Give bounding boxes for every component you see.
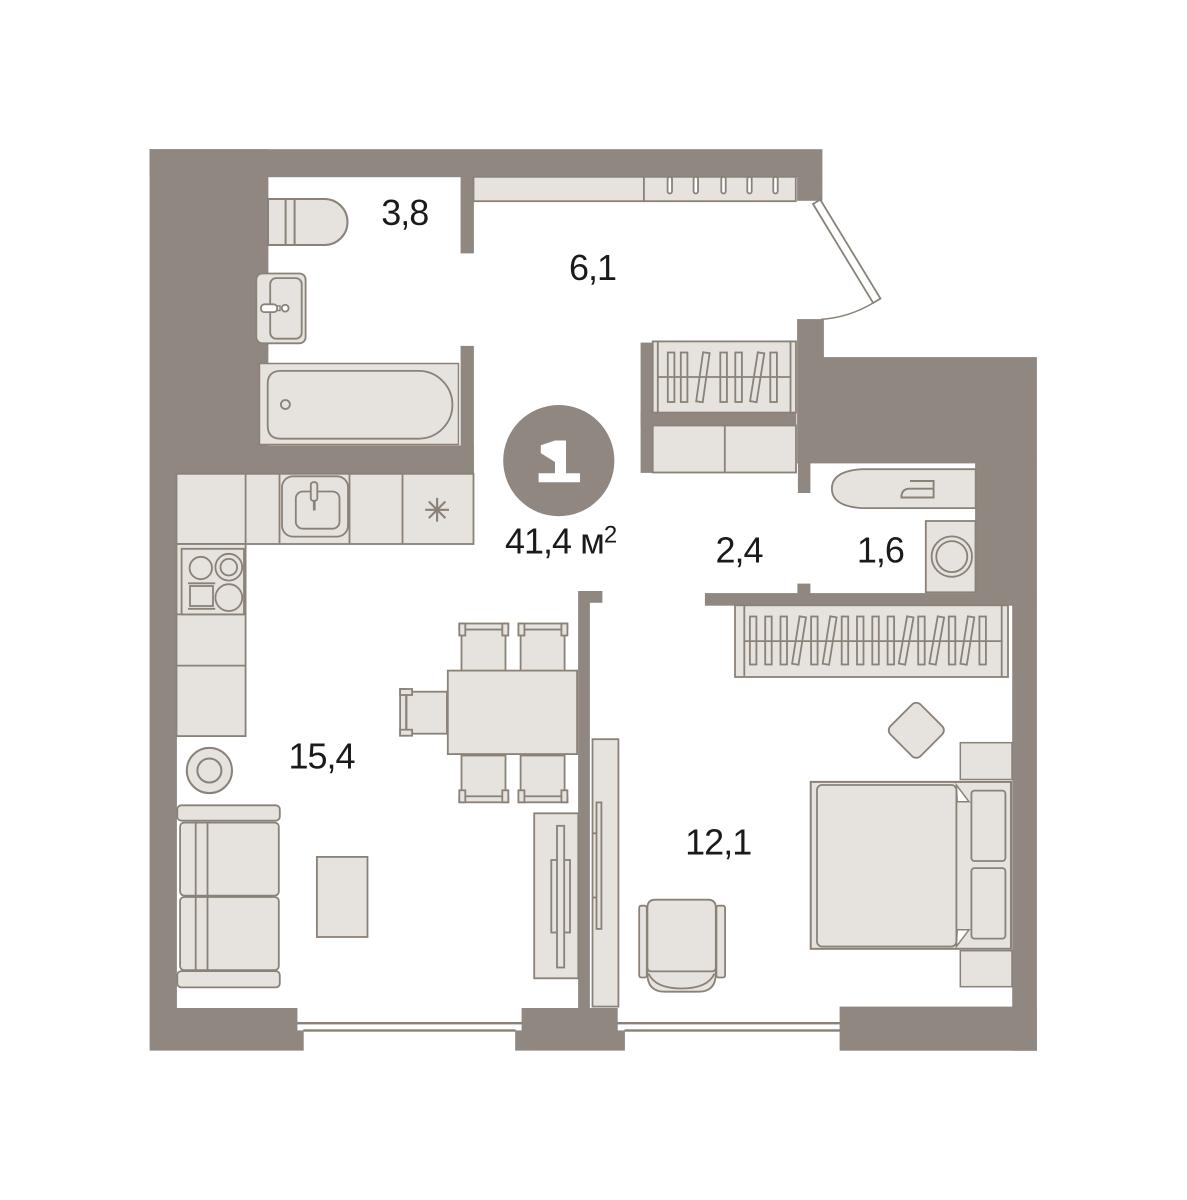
svg-text:6,1: 6,1	[569, 247, 616, 288]
svg-text:3,8: 3,8	[381, 192, 428, 233]
svg-text:12,1: 12,1	[685, 822, 751, 863]
svg-text:41,4 м2: 41,4 м2	[505, 520, 617, 561]
svg-text:1,6: 1,6	[857, 530, 904, 571]
svg-text:2,4: 2,4	[715, 530, 762, 571]
svg-text:15,4: 15,4	[288, 736, 354, 777]
